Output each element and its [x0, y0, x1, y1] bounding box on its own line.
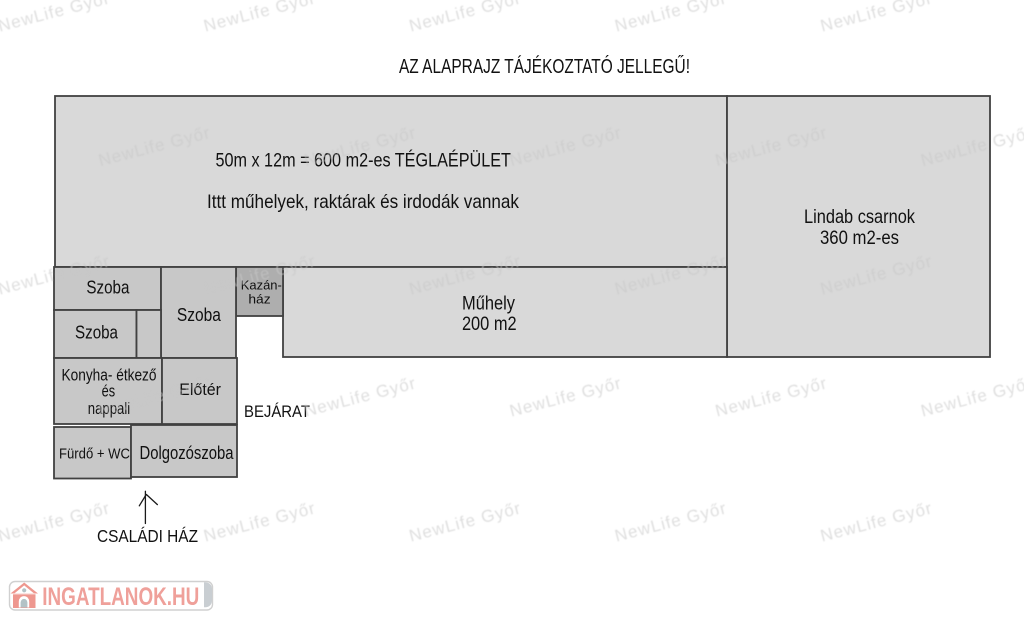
svg-text:ház: ház: [248, 293, 270, 307]
svg-text:Ittt műhelyek, raktárak és ird: Ittt műhelyek, raktárak és irdodák vanna…: [207, 191, 519, 213]
svg-text:Fürdő + WC: Fürdő + WC: [59, 447, 130, 463]
svg-text:Lindab csarnok: Lindab csarnok: [804, 207, 915, 228]
svg-text:Dolgozószoba: Dolgozószoba: [140, 442, 235, 463]
svg-text:200 m2: 200 m2: [462, 314, 517, 335]
svg-text:Szoba: Szoba: [177, 305, 222, 325]
svg-text:Szoba: Szoba: [75, 323, 119, 343]
svg-text:AZ ALAPRAJZ TÁJÉKOZTATÓ JELLEG: AZ ALAPRAJZ TÁJÉKOZTATÓ JELLEGŰ!: [399, 55, 690, 78]
svg-text:Szoba: Szoba: [86, 277, 130, 297]
svg-text:BEJÁRAT: BEJÁRAT: [244, 402, 310, 421]
svg-text:INGATLANOK.HU: INGATLANOK.HU: [42, 583, 199, 611]
svg-text:360 m2-es: 360 m2-es: [820, 228, 899, 249]
svg-text:CSALÁDI HÁZ: CSALÁDI HÁZ: [97, 526, 198, 546]
svg-text:Műhely: Műhely: [462, 294, 515, 315]
